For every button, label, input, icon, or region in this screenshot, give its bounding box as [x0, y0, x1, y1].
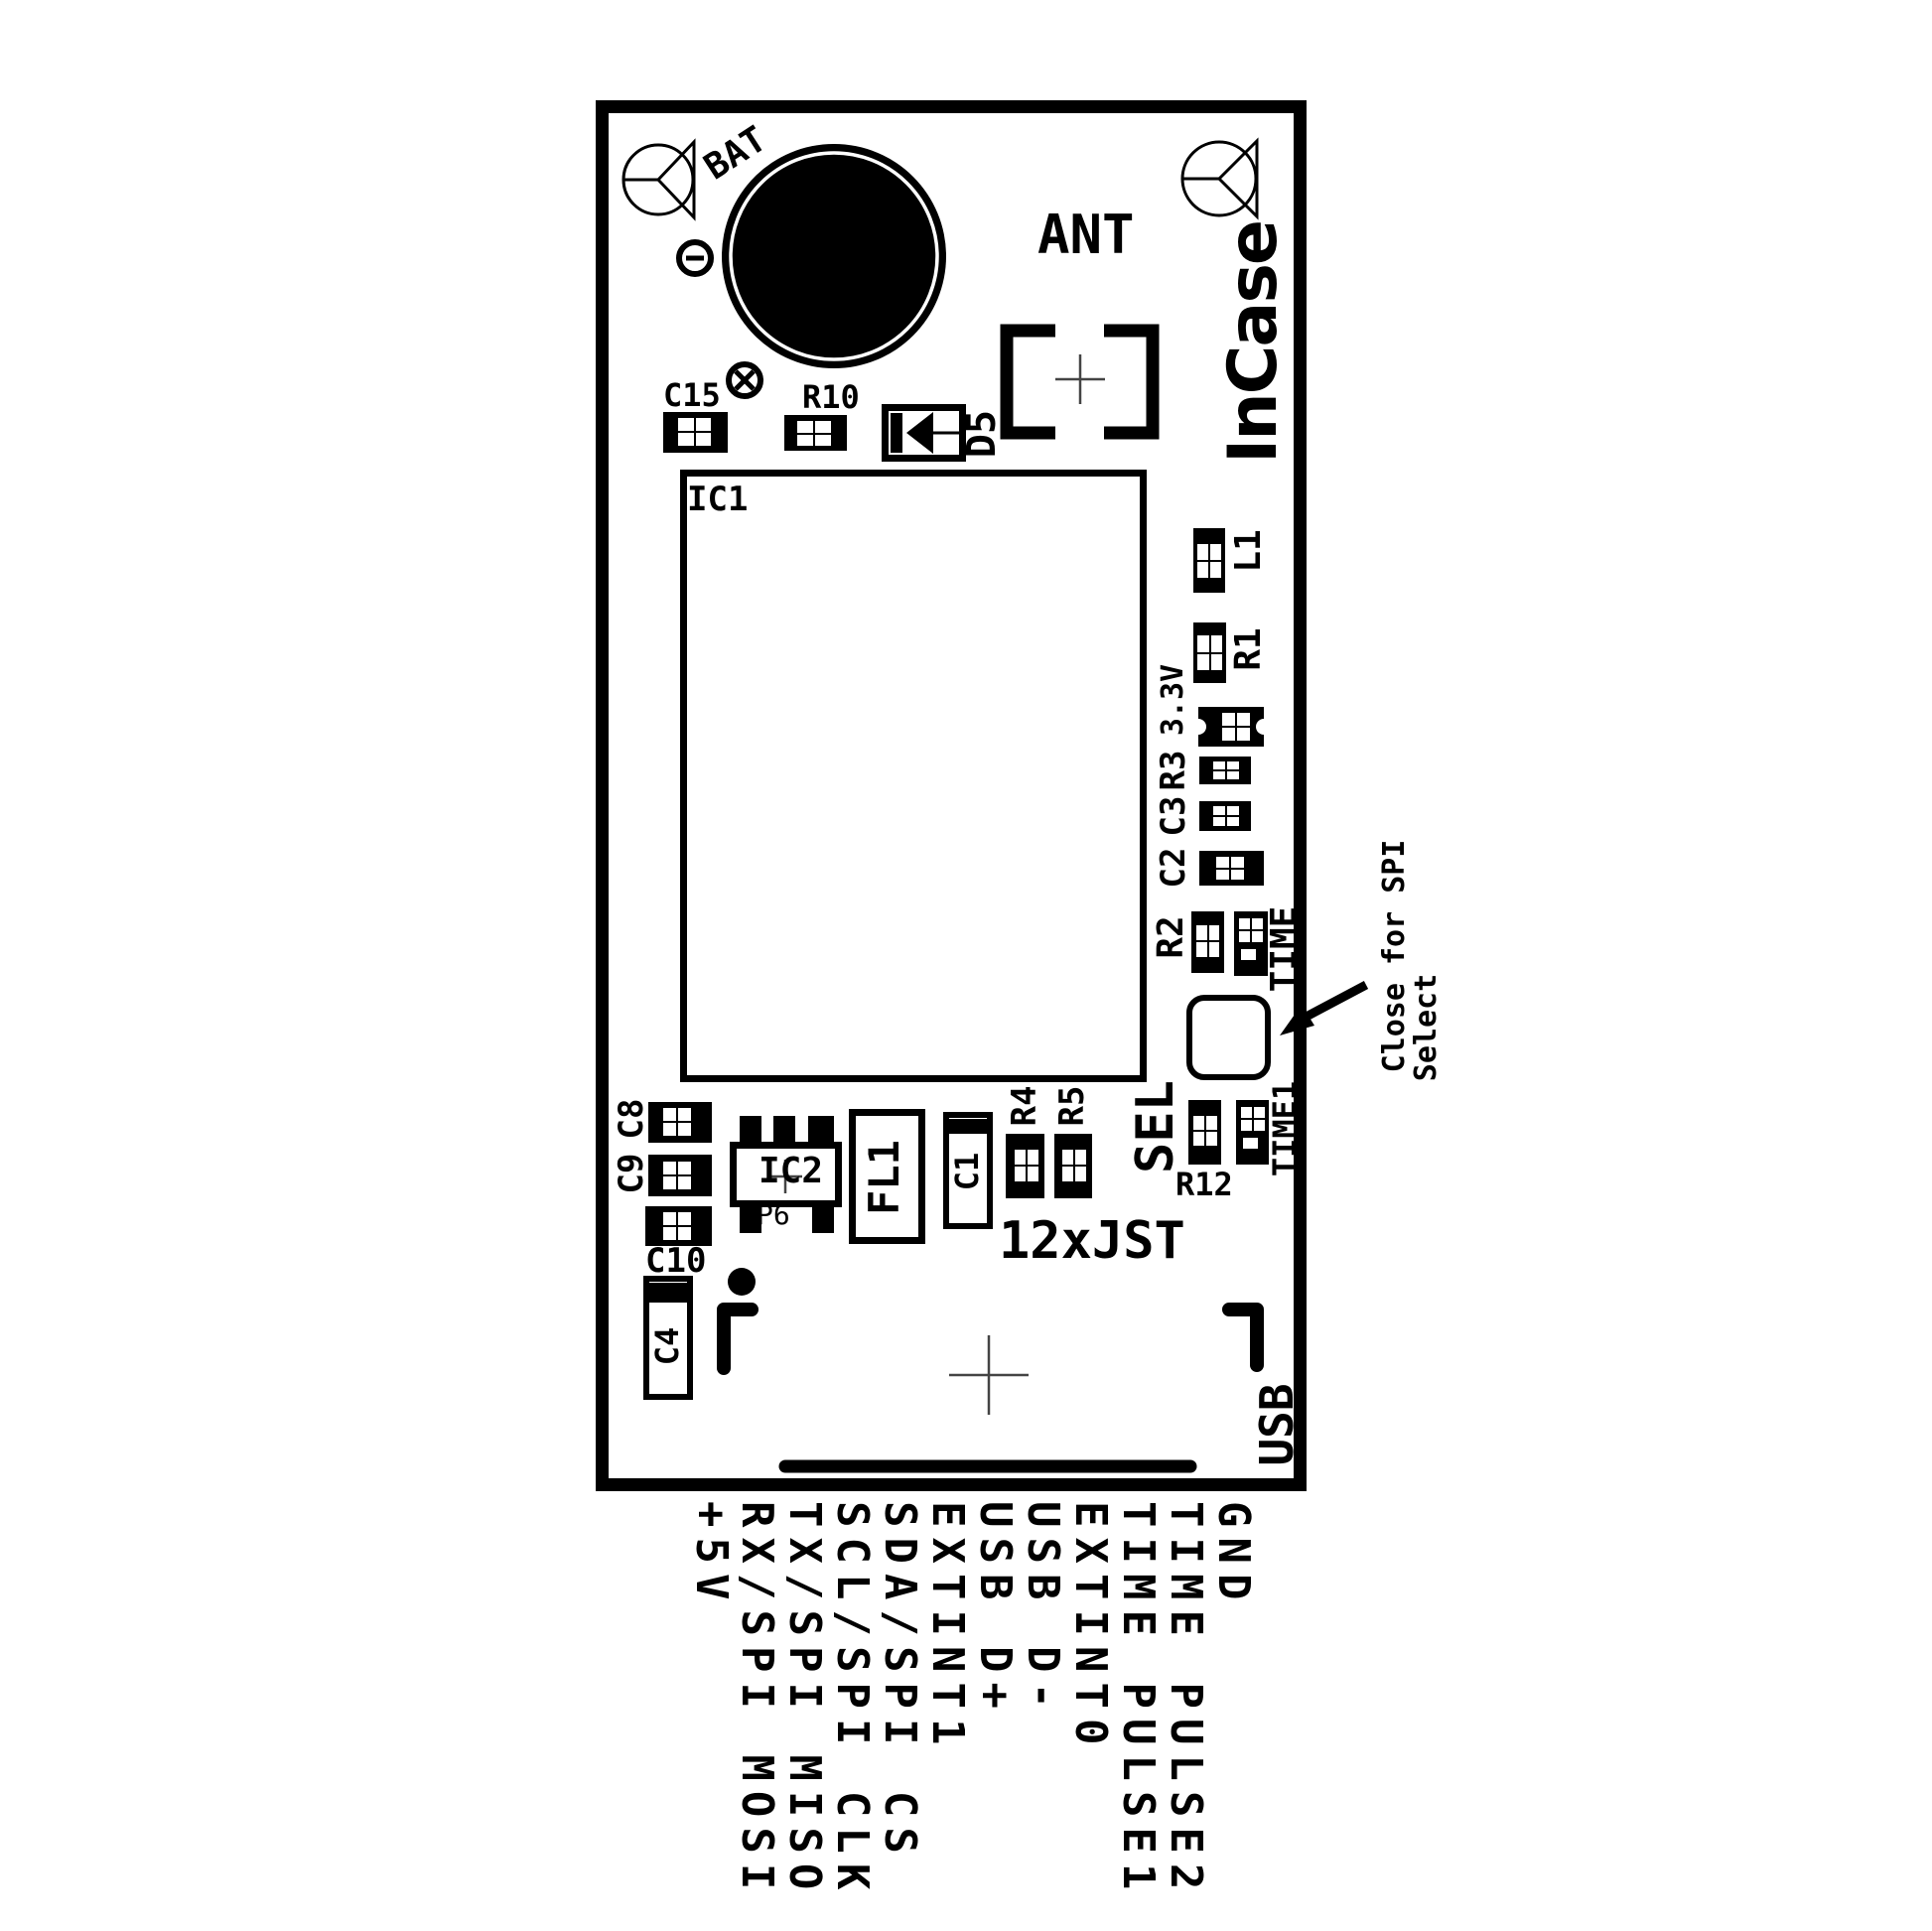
r5-label: R5 — [1055, 1086, 1089, 1127]
c15-label: C15 — [663, 379, 721, 411]
ic2-pin — [740, 1116, 761, 1143]
ic2-label: IC2 — [759, 1154, 823, 1189]
r12-pad — [1188, 1100, 1221, 1165]
pin-label: SCL/SPI CLK — [830, 1501, 874, 1899]
rail-label: 3.3V — [1159, 664, 1188, 736]
fiducial-mark-top-left — [623, 142, 694, 217]
annotation-line1: Close for SPI — [1380, 840, 1410, 1073]
usb-label: USB — [1254, 1383, 1300, 1465]
c10-label: C10 — [645, 1244, 706, 1278]
r4-pad — [1006, 1134, 1044, 1198]
pin-label: EXTINT0 — [1068, 1501, 1112, 1754]
jst-connector-label: 12xJST — [999, 1215, 1185, 1267]
time-label: TIME — [1267, 906, 1303, 993]
annotation-line2: Select — [1412, 974, 1442, 1081]
brand-label: InCase — [1220, 221, 1288, 464]
c8-label: C8 — [615, 1099, 648, 1140]
ic2-pin — [773, 1116, 795, 1143]
pin-label: TIME PULSE2 — [1164, 1501, 1207, 1899]
r3-pad — [1199, 757, 1251, 784]
pcb-silkscreen-diagram: IC1 C15 R10 C10 R12 12xJST ANT IC2 P6 BA… — [0, 0, 1932, 1931]
pin-label: GND — [1211, 1501, 1255, 1609]
usb-corner-marks — [724, 1310, 1257, 1368]
r4-label: R4 — [1008, 1086, 1041, 1127]
pin-label: TX/SPI MISO — [782, 1501, 826, 1899]
c3-label: C3 — [1157, 796, 1190, 837]
c8-pad — [648, 1102, 712, 1143]
pin-label: USB D- — [1021, 1501, 1064, 1719]
c1-polarity-band — [949, 1119, 987, 1134]
minus-polarity-icon — [679, 242, 711, 274]
pin-label: SDA/SPI CS — [878, 1501, 921, 1863]
r2-label: R2 — [1154, 915, 1189, 958]
c10-pad — [645, 1206, 712, 1246]
c1-label: C1 — [951, 1153, 983, 1191]
l1-pad — [1193, 528, 1225, 593]
pin-label: USB D+ — [973, 1501, 1017, 1719]
ant-label: ANT — [1037, 208, 1135, 262]
d5-label: D5 — [962, 410, 1002, 458]
c15-pad — [663, 412, 728, 453]
sel-solder-jumper — [1186, 995, 1271, 1080]
c9-pad — [648, 1155, 712, 1196]
r10-label: R10 — [802, 381, 860, 413]
r5-pad — [1054, 1134, 1092, 1198]
c4-polarity-band — [649, 1283, 687, 1303]
r3-label: R3 — [1157, 751, 1190, 791]
time-jumper-pad — [1234, 911, 1268, 976]
time1-jumper-pad — [1236, 1100, 1269, 1165]
r10-pad — [784, 415, 847, 451]
c2-pad — [1199, 851, 1264, 886]
c9-label: C9 — [615, 1154, 648, 1194]
pin1-dot — [728, 1268, 756, 1296]
l1-label: L1 — [1231, 529, 1267, 572]
fl1-label: FL1 — [864, 1140, 905, 1215]
fiducial-mark-top-right — [1182, 141, 1257, 216]
battery-holder — [722, 144, 946, 368]
rail-jumper-pad — [1198, 707, 1264, 747]
ic2-pin — [812, 1205, 834, 1233]
ic1-outline — [680, 470, 1147, 1082]
pin-label: EXTINT1 — [925, 1501, 969, 1754]
sel-label: SEL — [1130, 1080, 1181, 1173]
ic2-pin — [808, 1116, 834, 1143]
r1-pad — [1193, 622, 1226, 683]
pin-label: +5V — [689, 1501, 733, 1609]
c2-label: C2 — [1157, 848, 1190, 889]
r2-pad — [1191, 911, 1224, 973]
pin-label: RX/SPI MOSI — [735, 1501, 778, 1899]
time1-label: TIME1 — [1269, 1081, 1301, 1176]
p6-label: P6 — [757, 1201, 790, 1229]
pin-label: TIME PULSE1 — [1116, 1501, 1160, 1899]
c3-pad — [1199, 801, 1251, 831]
test-point-icon — [718, 353, 771, 407]
annotation-arrow — [1280, 985, 1366, 1035]
r1-label: R1 — [1231, 627, 1267, 670]
ic1-label: IC1 — [687, 483, 748, 516]
c4-label: C4 — [651, 1327, 683, 1366]
d5-outline — [882, 404, 966, 462]
